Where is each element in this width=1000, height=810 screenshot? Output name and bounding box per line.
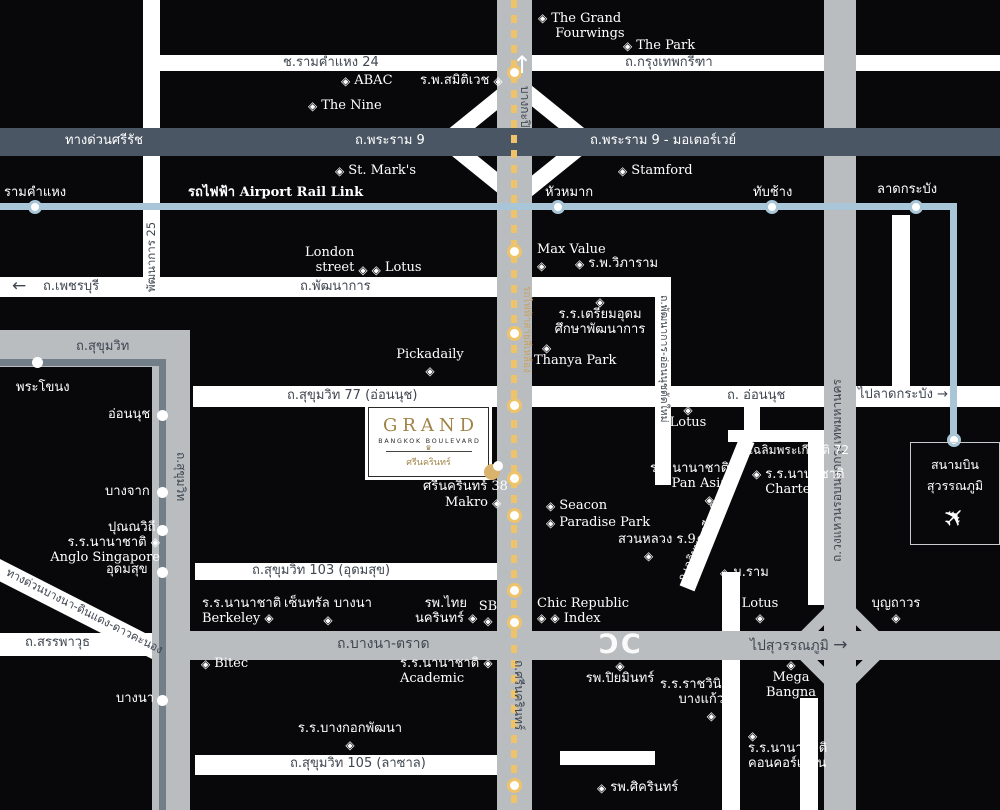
road-label-srinagarindra: ถ.ศรีนครินทร์: [512, 660, 525, 730]
arl-label-huamak: หัวหมาก: [545, 186, 593, 200]
poi-marker-icon: ◈: [597, 782, 606, 794]
poi-marker-icon: ◈: [720, 567, 729, 579]
arl-label-thapchang: ทับช้าง: [753, 186, 792, 200]
road-label-srirat: ทางด่วนศรีรัช: [65, 134, 143, 148]
bts-line-vertical: [159, 359, 166, 810]
poi-marker-icon: ◈: [335, 165, 344, 177]
poi-marker-icon: ◈: [201, 658, 210, 670]
brand-thai: ศรีนครินทร์: [406, 455, 450, 469]
poi-marker-icon: ◈: [283, 614, 373, 626]
road-ramkhamhaeng24: [143, 55, 1000, 71]
arrow-right-icon: →: [833, 635, 847, 655]
poi-suan-luang: สวนหลวง ร.9 ◈: [618, 533, 696, 562]
road-label-chalermprakiat72: ช.เฉลิมพระเกียรติ 72: [737, 444, 849, 457]
yellow-station: [507, 583, 522, 598]
poi-bangkok-phatthana: ร.ร.บางกอกพัฒนา ◈: [290, 722, 410, 751]
interchange-mark-icon: ƆC: [599, 629, 643, 660]
yellow-station: [507, 778, 522, 793]
poi-st-marks: ◈St. Mark's: [335, 164, 416, 179]
bts-station-udomsuk: [157, 567, 168, 578]
poi-makro: Makro◈: [445, 496, 501, 511]
road-label-phatthanakan25: พัฒนาการ 25: [145, 222, 158, 292]
poi-anglo-singapore: ร.ร.นานาชาติ ◈ Anglo Singapore: [50, 536, 160, 566]
poi-marker-icon: ◈: [341, 75, 350, 87]
road-sikarin-stub: [560, 751, 655, 765]
road-label-ram24: ช.รามคำแหง 24: [283, 56, 379, 70]
road-label-to-suvarnabhumi: ไปสุวรรณภูมิ →: [750, 636, 848, 655]
poi-central-bangna: เซ็นทรัล บางนา ◈: [283, 597, 373, 626]
bts-station-bangna: [157, 695, 168, 706]
road-label-rama9-motorway: ถ.พระราม 9 - มอเตอร์เวย์: [590, 134, 736, 148]
poi-marker-icon: ◈: [492, 497, 501, 509]
road-label-sukhumvit-vertical: ถ.สุขุมวิท: [174, 452, 187, 501]
poi-marker-icon: ◈: [476, 615, 500, 627]
road-label-phetchaburi: ถ.เพชรบุรี: [43, 280, 99, 294]
road-label-sukhumvit105: ถ.สุขุมวิท 105 (ลาซาล): [290, 757, 426, 771]
bts-label-phrakhanong: พระโขนง: [16, 381, 70, 395]
poi-thanya-park: ◈ Thanya Park: [534, 342, 616, 369]
road-label-sanphawut: ถ.สรรพาวุธ: [25, 636, 90, 650]
bts-station-bangchak: [157, 487, 168, 498]
arrow-up-icon: ↑: [512, 52, 532, 78]
arrow-left-icon: ←: [12, 277, 26, 296]
poi-academic: ร.ร.นานาชาติ ◈ Academic: [400, 657, 493, 687]
poi-marker-icon: ◈: [740, 612, 780, 624]
poi-seacon: ◈Seacon: [546, 499, 607, 514]
arl-station-latkrabang: [909, 200, 923, 214]
poi-berkeley: ร.ร.นานาชาติ Berkeley ◈: [202, 597, 281, 627]
road-label-rama9: ถ.พระราม 9: [355, 134, 425, 148]
yellow-station: [507, 508, 522, 523]
poi-thai-nakarin: รพ.ไทย นครินทร์ ◈: [415, 597, 467, 627]
poi-paradise-park: ◈Paradise Park: [546, 516, 650, 531]
airport-name-line1: สนามบิน: [931, 455, 979, 475]
poi-chic-republic-index: Chic Republic ◈ ◈ Index: [537, 597, 629, 627]
brand-name: GRAND: [383, 415, 479, 436]
poi-pickadaily: Pickadaily ◈: [395, 348, 465, 377]
bts-label-onnut: อ่อนนุช: [108, 408, 150, 422]
airport-name-line2: สุวรรณภูมิ: [927, 476, 983, 496]
poi-sikarin: ◈รพ.ศิครินทร์: [597, 781, 678, 796]
poi-marker-icon: ◈: [372, 264, 381, 276]
road-label-to-latkrabang: ไปลาดกระบัง →: [858, 388, 948, 402]
poi-charter: ◈ ร.ร.นานาชาติCharter: [752, 468, 844, 498]
poi-marker-icon: ◈: [644, 550, 696, 562]
poi-samitivej: ร.พ.สมิติเวช◈: [420, 74, 503, 89]
poi-marker-icon: ◈: [538, 12, 547, 24]
divider: [386, 451, 472, 452]
arl-line-label: รถไฟฟ้า Airport Rail Link: [188, 186, 363, 200]
arl-label-ramkhamhaeng: รามคำแหง: [4, 186, 66, 200]
airplane-icon: ✈: [937, 499, 974, 536]
poi-stamford: ◈Stamford: [618, 164, 693, 179]
yellow-station: [507, 244, 522, 259]
poi-lotus-bangna: Lotus ◈: [740, 597, 780, 624]
arl-line-horizontal: [0, 203, 957, 210]
poi-boonthavorn: บุญถาวร ◈: [868, 597, 924, 624]
location-map: ƆC ช.รามคำแหง 24 ถ.กรุงเทพกรีฑา ← ถ.เพชร…: [0, 0, 1000, 810]
poi-marker-icon: ◈: [546, 500, 555, 512]
poi-marker-icon: ◈: [308, 100, 317, 112]
poi-vibharam: ◈ร.พ.วิภาราม: [575, 257, 658, 272]
poi-bitec: ◈Bitec: [201, 657, 248, 672]
poi-marker-icon: ◈: [623, 40, 632, 52]
poi-marker-icon: ◈: [550, 611, 559, 625]
road-label-sukhumvit77: ถ.สุขุมวิท 77 (อ่อนนุช): [287, 389, 417, 403]
poi-marker-icon: ◈: [752, 468, 761, 480]
road-label-bangna-trad: ถ.บางนา-ตราด: [337, 637, 430, 652]
poi-grand-fourwings: ◈ The GrandFourwings: [538, 12, 625, 42]
bts-label-bangchak: บางจาก: [105, 485, 150, 499]
bts-label-punnawithi: ปุณณวิถี: [108, 521, 156, 535]
road-label-bangkapi: บางกะปิ: [518, 86, 531, 128]
arl-station-huamak: [551, 200, 565, 214]
poi-sb: SB ◈: [476, 600, 500, 627]
road-rama9-band: [0, 128, 1000, 156]
suvarnabhumi-airport-box: สนามบิน สุวรรณภูมิ ✈: [910, 442, 1000, 545]
road-label-sukhumvit103: ถ.สุขุมวิท 103 (อุดมสุข): [252, 564, 390, 578]
poi-marker-icon: ◈: [290, 739, 410, 751]
bts-line-horizontal: [0, 359, 166, 366]
project-location-pin-highlight: [493, 461, 503, 471]
poi-m-ram: ◈ม.ราม: [720, 566, 769, 581]
yellow-station: [507, 326, 522, 341]
poi-lotus-onnut: ◈ Lotus: [668, 404, 708, 431]
road-label-sukhumvit: ถ.สุขุมวิท: [76, 340, 129, 354]
poi-london-street-lotus: Londonstreet ◈ ◈ Lotus: [305, 246, 422, 276]
poi-marker-icon: ◈: [868, 612, 924, 624]
yellow-station: [507, 471, 522, 486]
arl-station-thapchang: [765, 200, 779, 214]
poi-the-park: ◈The Park: [623, 39, 695, 54]
poi-ratwinit: ร.ร.ราชวินิตบางแก้ว ◈: [660, 678, 724, 722]
road-east-minor: [892, 215, 910, 395]
bts-label-bangna: บางนา: [116, 692, 154, 706]
poi-the-nine: ◈The Nine: [308, 99, 382, 114]
yellow-station: [507, 398, 522, 413]
poi-marker-icon: ◈: [705, 494, 714, 506]
grand-logo-box: GRAND BANGKOK BOULEVARD ♛ ศรีนครินทร์: [365, 404, 492, 480]
poi-marker-icon: ◈: [546, 517, 555, 529]
road-label-krungthep-kreetha: ถ.กรุงเทพกรีฑา: [625, 56, 713, 70]
poi-marker-icon: ◈: [618, 165, 627, 177]
poi-marker-icon: ◈: [151, 535, 160, 549]
poi-marker-icon: ◈: [483, 656, 492, 670]
poi-marker-icon: ◈: [537, 611, 546, 625]
yellow-station: [507, 615, 522, 630]
poi-marker-icon: ◈: [575, 258, 584, 270]
poi-abac: ◈ABAC: [341, 74, 393, 89]
poi-triam-udom: ◈ ร.ร.เตรียมอุดมศึกษาพัฒนาการ: [548, 296, 652, 338]
poi-marker-icon: ◈: [358, 264, 367, 276]
poi-marker-icon: ◈: [707, 710, 716, 722]
arl-line-vertical: [950, 203, 957, 438]
poi-marker-icon: ◈: [264, 611, 273, 625]
poi-marker-icon: ◈: [493, 75, 502, 87]
yellow-line-label: รถไฟฟ้าสายสีเหลือง: [521, 286, 532, 373]
soi-38-label: ศรีนครินทร์ 38: [423, 480, 508, 494]
poi-pan-asia: ร.ร.นานาชาติPan Asia ◈: [650, 462, 728, 506]
arrow-right-icon: →: [937, 387, 948, 402]
poi-concordian: ◈ ร.ร.นานาชาติคอนคอร์เดียน: [748, 730, 827, 772]
road-label-onnut: ถ. อ่อนนุช: [727, 389, 785, 403]
arl-label-latkrabang: ลาดกระบัง: [877, 183, 937, 197]
road-label-phatthanakan: ถ.พัฒนาการ: [300, 280, 371, 294]
arl-station-ramkhamhaeng: [28, 200, 42, 214]
poi-mega-bangna: ◈ MegaBangna: [763, 659, 819, 701]
bts-station-phrakhanong: [32, 357, 43, 368]
bts-station-onnut: [157, 410, 168, 421]
poi-piyamin: ◈ รพ.ปิยมินทร์: [583, 660, 657, 687]
poi-marker-icon: ◈: [395, 365, 465, 377]
